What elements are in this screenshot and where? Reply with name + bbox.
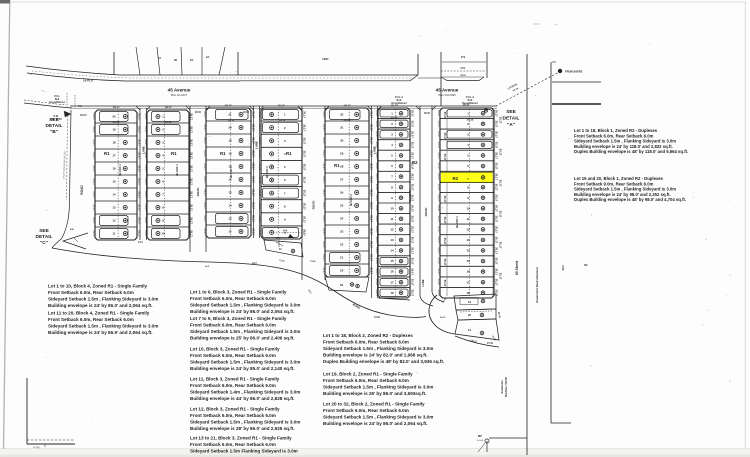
svg-text:35.17: 35.17 xyxy=(438,289,442,296)
svg-text:14: 14 xyxy=(228,204,232,208)
svg-text:R=12: R=12 xyxy=(440,317,446,319)
svg-text:DETAIL: DETAIL xyxy=(503,116,520,122)
svg-text:"A": "A" xyxy=(507,122,515,128)
svg-text:35.17: 35.17 xyxy=(411,258,415,265)
svg-text:SEE: SEE xyxy=(39,228,49,234)
svg-text:35.17: 35.17 xyxy=(495,205,499,212)
svg-text:33.0V: 33.0V xyxy=(80,114,87,117)
svg-text:35.17: 35.17 xyxy=(443,280,447,287)
svg-text:Lot 11, Block 3, Zoned R1 - Si: Lot 11, Block 3, Zoned R1 - Single Famil… xyxy=(190,377,280,382)
svg-text:35.17: 35.17 xyxy=(495,184,499,191)
svg-text:35.17: 35.17 xyxy=(303,190,307,197)
svg-text:29: 29 xyxy=(340,152,344,156)
svg-text:Plan/Plan 7722YB: Plan/Plan 7722YB xyxy=(505,377,508,397)
svg-text:35.17: 35.17 xyxy=(438,205,442,212)
svg-text:35.17: 35.17 xyxy=(93,152,97,159)
svg-text:Building envelope is 24' by 98: Building envelope is 24' by 98.0' and 2,… xyxy=(574,192,671,197)
svg-text:R1: R1 xyxy=(220,151,226,156)
svg-text:35.17: 35.17 xyxy=(499,117,503,124)
svg-text:35.17: 35.17 xyxy=(138,191,142,198)
svg-text:Lot 20 to 32, Block 2, Zoned R: Lot 20 to 32, Block 2, Zoned R1 - Single… xyxy=(323,402,425,407)
svg-text:DETAIL: DETAIL xyxy=(46,123,63,129)
svg-text:19: 19 xyxy=(112,128,116,132)
svg-text:104.97: 104.97 xyxy=(343,105,351,108)
svg-text:15: 15 xyxy=(228,191,232,195)
svg-text:35.17: 35.17 xyxy=(93,191,97,198)
svg-text:35.17: 35.17 xyxy=(495,279,499,286)
svg-text:Sideyard Setback 1.5m , Flanki: Sideyard Setback 1.5m , Flanking Sideyar… xyxy=(574,139,676,144)
svg-text:Front Setback 9.0m, Rear Setba: Front Setback 9.0m, Rear Setback 6.0m xyxy=(574,181,654,186)
svg-text:28: 28 xyxy=(340,165,344,169)
svg-text:35.17: 35.17 xyxy=(411,226,415,233)
svg-text:ROAD: ROAD xyxy=(80,185,84,195)
svg-text:R1: R1 xyxy=(334,163,340,168)
svg-text:35.17: 35.17 xyxy=(411,289,415,296)
svg-text:35.17: 35.17 xyxy=(495,110,499,117)
svg-text:Plan No 2007: Plan No 2007 xyxy=(171,93,188,97)
svg-text:Sideyard Setback 1.5m , Flanki: Sideyard Setback 1.5m , Flanking Sideyar… xyxy=(190,303,300,308)
svg-text:435.4A: 435.4A xyxy=(165,121,172,124)
svg-text:35.17: 35.17 xyxy=(303,164,307,171)
svg-text:Lot 11 to 20, Block 4, Zoned R: Lot 11 to 20, Block 4, Zoned R1 - Single… xyxy=(48,311,150,316)
svg-text:Government Road Allowance: Government Road Allowance xyxy=(535,266,539,302)
svg-text:19 PLS: 19 PLS xyxy=(83,79,93,83)
svg-text:35.17: 35.17 xyxy=(438,120,442,127)
svg-text:35.17: 35.17 xyxy=(438,215,442,222)
svg-text:35.17: 35.17 xyxy=(138,204,142,211)
svg-text:32: 32 xyxy=(340,113,344,117)
svg-text:Duplex Building envelope is 48: Duplex Building envelope is 48' by 98.0'… xyxy=(574,197,686,202)
svg-text:Front Setback 6.0m, Rear Setba: Front Setback 6.0m, Rear Setback 6.0m xyxy=(190,442,276,447)
svg-text:15: 15 xyxy=(390,259,394,263)
svg-text:16: 16 xyxy=(390,270,394,274)
svg-text:SEE: SEE xyxy=(506,109,516,115)
svg-text:Front Setback 6.0m, Rear Setba: Front Setback 6.0m, Rear Setback 6.0m xyxy=(574,133,654,138)
svg-text:35.17: 35.17 xyxy=(138,139,142,146)
svg-text:35.17: 35.17 xyxy=(495,237,499,244)
svg-text:35.17: 35.17 xyxy=(411,268,415,275)
svg-text:35.17: 35.17 xyxy=(499,149,503,156)
svg-text:27k: 27k xyxy=(461,55,466,59)
svg-text:35.17: 35.17 xyxy=(303,111,307,118)
svg-text:435.4A: 435.4A xyxy=(279,120,286,123)
svg-text:Front Setback 6.0m, Rear Setba: Front Setback 6.0m, Rear Setback 6.0m xyxy=(190,323,276,328)
svg-text:Lot 10, Block 3, Zoned R1 - Si: Lot 10, Block 3, Zoned R1 - Single Famil… xyxy=(190,347,280,352)
svg-text:21: 21 xyxy=(340,256,344,260)
svg-text:1WP: 1WP xyxy=(322,57,329,61)
svg-text:35.17: 35.17 xyxy=(93,113,97,120)
svg-text:104.97: 104.97 xyxy=(112,107,120,110)
svg-text:22: 22 xyxy=(340,243,344,247)
svg-text:17: 17 xyxy=(112,154,116,158)
svg-text:35.17: 35.17 xyxy=(438,258,442,265)
svg-text:Lot 7 to 9, Block 3, Zoned R1: Lot 7 to 9, Block 3, Zoned R1 - Single F… xyxy=(190,316,287,321)
svg-text:435.4A: 435.4A xyxy=(113,121,120,124)
svg-text:Front Setback 6.0m, Rear Setba: Front Setback 6.0m, Rear Setback 6.0m xyxy=(190,296,276,301)
svg-text:R1: R1 xyxy=(104,151,110,156)
svg-text:ROAD: ROAD xyxy=(312,200,316,210)
svg-text:BLOCK 3: BLOCK 3 xyxy=(265,166,269,178)
svg-text:35.17: 35.17 xyxy=(323,228,327,235)
svg-text:35.17: 35.17 xyxy=(323,150,327,157)
svg-text:35.17: 35.17 xyxy=(443,133,447,140)
svg-text:35.17: 35.17 xyxy=(495,226,499,233)
svg-text:Building envelope is 24' by 85: Building envelope is 24' by 85.0' and 2,… xyxy=(190,366,295,371)
svg-text:35.17: 35.17 xyxy=(495,194,499,201)
svg-text:35.17: 35.17 xyxy=(303,150,307,157)
svg-text:BLOCK 2: BLOCK 2 xyxy=(408,190,412,202)
svg-text:35.17: 35.17 xyxy=(438,226,442,233)
svg-text:10: 10 xyxy=(390,206,394,210)
svg-text:35.17: 35.17 xyxy=(495,142,499,149)
svg-text:R2: R2 xyxy=(453,176,459,181)
svg-text:435.4A: 435.4A xyxy=(391,117,398,120)
svg-text:Building envelope is 24' by 82: Building envelope is 24' by 82.0' and 1,… xyxy=(323,353,428,358)
svg-text:104.97: 104.97 xyxy=(164,107,172,110)
svg-text:Front Setback 6.0m, Rear Setba: Front Setback 6.0m, Rear Setback 6.0m xyxy=(190,353,276,358)
svg-text:Sideyard Setback 1.5m , Flanki: Sideyard Setback 1.5m , Flanking Sideyar… xyxy=(574,187,676,192)
svg-text:Building envelope is 24' by 11: Building envelope is 24' by 118.0' and 2… xyxy=(574,144,673,149)
svg-text:35.17: 35.17 xyxy=(411,173,415,180)
svg-text:BLOCK 3: BLOCK 3 xyxy=(229,166,233,178)
svg-text:Sideyard Setback 1.5m , Flanki: Sideyard Setback 1.5m , Flanking Sideyar… xyxy=(323,385,433,390)
svg-text:35.17: 35.17 xyxy=(93,217,97,224)
svg-text:Sideyard Setback 1.5m Flankin: Sideyard Setback 1.5m Flanking Sideyard … xyxy=(190,449,298,454)
svg-text:17: 17 xyxy=(390,280,394,284)
svg-text:Building envelope is 25' by 86: Building envelope is 25' by 86.0' and 2,… xyxy=(190,336,295,341)
svg-text:35.17: 35.17 xyxy=(411,279,415,286)
svg-text:35.17: 35.17 xyxy=(495,247,499,254)
svg-text:Desig/Named: Desig/Named xyxy=(49,101,65,104)
svg-text:Front Setback 6.0m, Rear Setba: Front Setback 6.0m, Rear Setback 6.0m xyxy=(48,317,134,322)
svg-text:BLM: BLM xyxy=(276,238,281,240)
svg-text:Sideyard Setback 1.5m , Flanki: Sideyard Setback 1.5m , Flanking Sideyar… xyxy=(190,420,300,425)
svg-text:35.17: 35.17 xyxy=(438,152,442,159)
svg-text:28.00: 28.00 xyxy=(424,112,431,115)
svg-text:35.17: 35.17 xyxy=(438,237,442,244)
svg-text:35.17: 35.17 xyxy=(204,228,208,235)
svg-text:Building envelope is 24' by 86: Building envelope is 24' by 86.9' and 2,… xyxy=(48,330,153,335)
svg-text:14: 14 xyxy=(390,249,394,253)
svg-text:19: 19 xyxy=(228,139,232,143)
svg-text:Sideyard Setback 1.5m , Flanki: Sideyard Setback 1.5m , Flanking Sideyar… xyxy=(48,297,158,302)
svg-text:35.17: 35.17 xyxy=(303,124,307,131)
svg-text:Shel: Shel xyxy=(562,265,565,270)
svg-text:35.17: 35.17 xyxy=(323,202,327,209)
svg-text:45 Avenue: 45 Avenue xyxy=(168,88,191,93)
svg-text:26: 26 xyxy=(340,191,344,195)
svg-text:Lot 1 to 18, Block 1, Zoned R2: Lot 1 to 18, Block 1, Zoned R2 - Duplexe… xyxy=(574,128,658,133)
svg-text:35.17: 35.17 xyxy=(411,215,415,222)
svg-text:35.17: 35.17 xyxy=(323,111,327,118)
svg-text:Building envelope is 24' by 86: Building envelope is 24' by 86.0' and 2,… xyxy=(323,421,428,426)
svg-text:9A: 9A xyxy=(206,55,209,59)
svg-text:104.97: 104.97 xyxy=(390,105,398,108)
svg-text:16: 16 xyxy=(112,167,116,171)
svg-text:435.4A: 435.4A xyxy=(467,119,474,122)
svg-text:Building envelope is 44' by 86: Building envelope is 44' by 86.0' and 2,… xyxy=(190,396,295,401)
svg-text:Residential: Residential xyxy=(501,380,504,393)
svg-text:35.17: 35.17 xyxy=(499,273,503,280)
svg-text:35.17: 35.17 xyxy=(495,120,499,127)
svg-text:35.17: 35.17 xyxy=(204,124,208,131)
svg-text:35.17: 35.17 xyxy=(323,163,327,170)
svg-text:LANE: LANE xyxy=(421,279,425,286)
svg-text:R1: R1 xyxy=(286,151,292,156)
svg-text:"B": "B" xyxy=(50,129,58,135)
svg-text:C5L: C5L xyxy=(461,66,466,70)
svg-text:Sideyard Setback 1.5m , Flanki: Sideyard Setback 1.5m , Flanking Sideyar… xyxy=(190,360,300,365)
svg-text:35.17: 35.17 xyxy=(411,237,415,244)
svg-text:"C": "C" xyxy=(40,240,48,246)
svg-text:LANE: LANE xyxy=(373,146,377,154)
svg-text:35.17: 35.17 xyxy=(443,154,447,161)
svg-text:35.17: 35.17 xyxy=(495,163,499,170)
svg-text:13: 13 xyxy=(112,206,116,210)
svg-text:35.17: 35.17 xyxy=(495,152,499,159)
svg-text:35.17: 35.17 xyxy=(303,137,307,144)
svg-text:35.17: 35.17 xyxy=(411,142,415,149)
svg-text:BLOCK 4: BLOCK 4 xyxy=(118,164,122,176)
svg-text:Lot 19, Block 2, Zoned R1 - Si: Lot 19, Block 2, Zoned R1 - Single Famil… xyxy=(323,372,413,377)
svg-text:3M: 3M xyxy=(584,264,587,267)
svg-text:11: 11 xyxy=(113,232,116,236)
svg-text:35.17: 35.17 xyxy=(303,216,307,223)
svg-text:35.17: 35.17 xyxy=(204,215,208,222)
svg-text:45 Avenue: 45 Avenue xyxy=(436,87,459,92)
svg-text:35.17: 35.17 xyxy=(204,137,208,144)
svg-text:27.22: 27.22 xyxy=(487,342,494,345)
svg-text:20: 20 xyxy=(228,126,232,130)
svg-text:35.17: 35.17 xyxy=(438,110,442,117)
svg-text:P4L: P4L xyxy=(70,228,75,231)
svg-text:28.00: 28.00 xyxy=(243,111,250,114)
svg-text:35.17: 35.17 xyxy=(204,163,208,170)
svg-text:LANE: LANE xyxy=(141,146,145,154)
svg-text:35.17: 35.17 xyxy=(138,217,142,224)
svg-text:Front Setback 6.0m, Rear Setba: Front Setback 6.0m, Rear Setback 6.0m xyxy=(48,290,134,295)
svg-text:435.4A: 435.4A xyxy=(344,119,351,122)
svg-text:18: 18 xyxy=(390,291,394,295)
svg-text:35.17: 35.17 xyxy=(323,189,327,196)
svg-text:Lot 1 to 18, Block 2, Zoned R2: Lot 1 to 18, Block 2, Zoned R2 - Duplexe… xyxy=(323,333,413,338)
svg-text:21: 21 xyxy=(228,113,232,117)
svg-text:35.17: 35.17 xyxy=(443,217,447,224)
svg-text:104.97: 104.97 xyxy=(224,105,232,108)
svg-text:Front Setback 6.0m, Rear Setba: Front Setback 6.0m, Rear Setback 6.0m xyxy=(323,408,409,413)
svg-text:35.17: 35.17 xyxy=(138,113,142,120)
svg-text:Duplex Building envelope is 48: Duplex Building envelope is 48' by 82.0'… xyxy=(323,359,444,364)
svg-text:R2: R2 xyxy=(412,160,418,165)
svg-text:P.U.: P.U. xyxy=(78,105,83,108)
svg-text:20: 20 xyxy=(112,115,116,119)
svg-text:15: 15 xyxy=(466,259,470,263)
svg-text:35.17: 35.17 xyxy=(323,254,327,261)
svg-text:18: 18 xyxy=(228,152,232,156)
svg-text:35.17: 35.17 xyxy=(443,112,447,119)
svg-text:35.17: 35.17 xyxy=(93,139,97,146)
svg-text:35.17: 35.17 xyxy=(438,247,442,254)
svg-text:Sideyard Setback 1.5m , Flanki: Sideyard Setback 1.5m , Flanking Sideyar… xyxy=(323,415,433,420)
svg-text:35.17: 35.17 xyxy=(323,137,327,144)
svg-text:LANE: LANE xyxy=(255,141,259,149)
svg-text:12: 12 xyxy=(228,230,232,234)
svg-text:35.17: 35.17 xyxy=(495,268,499,275)
svg-text:35.17: 35.17 xyxy=(323,215,327,222)
svg-text:35.17: 35.17 xyxy=(323,267,327,274)
svg-text:Front Setback 6.0m, Rear Setba: Front Setback 6.0m, Rear Setback 6.0m xyxy=(323,340,409,345)
svg-text:Front Setback 6.0m, Rear Setba: Front Setback 6.0m, Rear Setback 6.0m xyxy=(190,413,276,418)
svg-text:35.17: 35.17 xyxy=(411,205,415,212)
svg-text:35.17: 35.17 xyxy=(204,202,208,209)
svg-text:BLOCK 2: BLOCK 2 xyxy=(349,194,353,206)
svg-text:35.17: 35.17 xyxy=(204,150,208,157)
svg-text:Lot 13 to 21, Block 3, Zoned R: Lot 13 to 21, Block 3, Zoned R1 - Single… xyxy=(190,436,292,441)
svg-text:F41a8: F41a8 xyxy=(477,440,484,442)
svg-text:35.17: 35.17 xyxy=(323,124,327,131)
svg-text:R1: R1 xyxy=(171,151,177,156)
svg-text:Front Setback 6.0m, Rear Setba: Front Setback 6.0m, Rear Setback 6.0m xyxy=(323,378,409,383)
svg-text:Duplex Building envelope is 48: Duplex Building envelope is 48' by 118.0… xyxy=(574,149,688,154)
svg-text:435.4A: 435.4A xyxy=(228,120,235,123)
svg-text:Building envelope is 25' by 86: Building envelope is 25' by 86.0' and 3,… xyxy=(323,391,426,396)
svg-text:60 Street: 60 Street xyxy=(515,260,519,275)
svg-text:35.17: 35.17 xyxy=(443,259,447,266)
svg-text:Lot 1 to 10, Block 4, Zoned R1: Lot 1 to 10, Block 4, Zoned R1 - Single … xyxy=(48,284,147,289)
svg-text:35.17: 35.17 xyxy=(93,204,97,211)
svg-text:Building envelope is 24' by 86: Building envelope is 24' by 86.0' and 2,… xyxy=(190,309,295,314)
svg-text:35.17: 35.17 xyxy=(303,177,307,184)
svg-text:35.17: 35.17 xyxy=(499,242,503,249)
svg-text:35.17: 35.17 xyxy=(93,230,97,237)
svg-text:35.17: 35.17 xyxy=(204,189,208,196)
svg-text:35.17: 35.17 xyxy=(323,241,327,248)
svg-text:ROAD: ROAD xyxy=(424,207,428,217)
svg-text:Lot 1 to 6, Block 3, Zoned R1: Lot 1 to 6, Block 3, Zoned R1 - Single F… xyxy=(190,290,287,295)
svg-text:Building envelope is 28' by 86: Building envelope is 28' by 86.0' and 2,… xyxy=(190,426,295,431)
svg-text:Building envelope is 24' by 86: Building envelope is 24' by 86.0' and 2,… xyxy=(48,303,153,308)
svg-text:35.17: 35.17 xyxy=(411,120,415,127)
svg-text:35.17: 35.17 xyxy=(138,126,142,133)
svg-text:35.17: 35.17 xyxy=(204,176,208,183)
svg-text:Lot 19 and 20, Block 1, Zoned: Lot 19 and 20, Block 1, Zoned R2 - Duple… xyxy=(574,176,664,181)
svg-text:35.17: 35.17 xyxy=(438,194,442,201)
svg-text:35.17: 35.17 xyxy=(138,165,142,172)
svg-text:DETAIL: DETAIL xyxy=(36,234,53,240)
svg-text:35.17: 35.17 xyxy=(138,178,142,185)
svg-text:104.97: 104.97 xyxy=(277,105,285,108)
svg-text:13: 13 xyxy=(390,238,394,242)
svg-text:25: 25 xyxy=(340,204,344,208)
svg-text:Sideyard Setback 1.5m , Flanki: Sideyard Setback 1.5m , Flanking Sideyar… xyxy=(190,329,300,334)
svg-text:12: 12 xyxy=(112,219,116,223)
svg-text:11: 11 xyxy=(391,217,394,221)
svg-text:27: 27 xyxy=(340,178,344,182)
svg-text:35.17: 35.17 xyxy=(411,110,415,117)
svg-text:35.17: 35.17 xyxy=(411,247,415,254)
svg-text:35.17: 35.17 xyxy=(495,289,499,296)
svg-text:73.40: 73.40 xyxy=(310,260,316,263)
svg-text:xx mg: xx mg xyxy=(33,446,40,449)
svg-text:14: 14 xyxy=(112,193,116,197)
svg-text:21.0: 21.0 xyxy=(138,241,143,244)
svg-text:35.17: 35.17 xyxy=(93,126,97,133)
svg-text:Sideyard Setback 1.4m , Flanki: Sideyard Setback 1.4m , Flanking Sideyar… xyxy=(190,390,300,395)
svg-text:ROAD: ROAD xyxy=(196,187,200,197)
svg-text:24: 24 xyxy=(340,217,344,221)
svg-text:35.17: 35.17 xyxy=(138,230,142,237)
svg-text:35.17: 35.17 xyxy=(438,268,442,275)
svg-text:23: 23 xyxy=(340,230,344,234)
svg-text:104.97: 104.97 xyxy=(462,104,470,107)
svg-text:FROM SHERE: FROM SHERE xyxy=(565,70,583,74)
svg-text:35.17: 35.17 xyxy=(495,131,499,138)
svg-text:35.17: 35.17 xyxy=(411,152,415,159)
svg-text:35.17: 35.17 xyxy=(443,196,447,203)
svg-text:35.17: 35.17 xyxy=(411,184,415,191)
svg-text:31: 31 xyxy=(340,126,344,130)
svg-text:SEE: SEE xyxy=(49,117,59,123)
svg-text:35.17: 35.17 xyxy=(93,178,97,185)
svg-text:35.17: 35.17 xyxy=(204,111,208,118)
svg-text:MP: MP xyxy=(478,434,482,438)
svg-text:BLOCK 1: BLOCK 1 xyxy=(455,216,459,228)
svg-text:29.2: 29.2 xyxy=(252,262,257,265)
svg-text:35.17: 35.17 xyxy=(323,176,327,183)
svg-text:19 kil: 19 kil xyxy=(374,316,380,319)
svg-text:35.17: 35.17 xyxy=(438,131,442,138)
svg-text:19: 19 xyxy=(340,283,344,287)
svg-text:35.17: 35.17 xyxy=(495,258,499,265)
svg-text:35.17: 35.17 xyxy=(495,215,499,222)
svg-text:35.17: 35.17 xyxy=(411,131,415,138)
svg-text:35.17: 35.17 xyxy=(495,173,499,180)
svg-text:Sideyard Setback 1.5m , Flanki: Sideyard Setback 1.5m , Flanking Sideyar… xyxy=(323,346,433,351)
svg-text:20: 20 xyxy=(340,269,344,273)
svg-text:11: 11 xyxy=(467,217,470,221)
svg-text:35.17: 35.17 xyxy=(443,238,447,245)
svg-text:35.17: 35.17 xyxy=(499,180,503,187)
svg-text:35.17: 35.17 xyxy=(438,184,442,191)
svg-text:28.00: 28.00 xyxy=(195,111,202,114)
svg-text:30: 30 xyxy=(340,139,344,143)
svg-text:15: 15 xyxy=(112,180,116,184)
svg-text:BLOCK 4: BLOCK 4 xyxy=(175,164,179,176)
svg-text:18: 18 xyxy=(112,141,116,145)
svg-text:35.17: 35.17 xyxy=(93,165,97,172)
svg-text:35.17: 35.17 xyxy=(303,229,307,236)
svg-text:35.17: 35.17 xyxy=(438,163,442,170)
svg-text:Lot 12, Block 3, Zoned R1 - Si: Lot 12, Block 3, Zoned R1 - Single Famil… xyxy=(190,407,280,412)
svg-text:35.17: 35.17 xyxy=(303,203,307,210)
svg-text:Front Setback 6.0m, Rear Setba: Front Setback 6.0m, Rear Setback 6.0m xyxy=(190,383,276,388)
svg-text:35.17: 35.17 xyxy=(438,279,442,286)
svg-text:13: 13 xyxy=(228,217,232,221)
svg-text:28/32: 28/32 xyxy=(460,75,466,77)
svg-text:Plan 042 0995: Plan 042 0995 xyxy=(438,93,456,97)
svg-text:12: 12 xyxy=(390,227,394,231)
svg-text:Sideyard Setback 1.5m , Flanki: Sideyard Setback 1.5m , Flanking Sideyar… xyxy=(48,324,158,329)
svg-text:35.17: 35.17 xyxy=(438,142,442,149)
svg-text:35.17: 35.17 xyxy=(499,211,503,218)
svg-text:8A: 8A xyxy=(190,58,193,62)
